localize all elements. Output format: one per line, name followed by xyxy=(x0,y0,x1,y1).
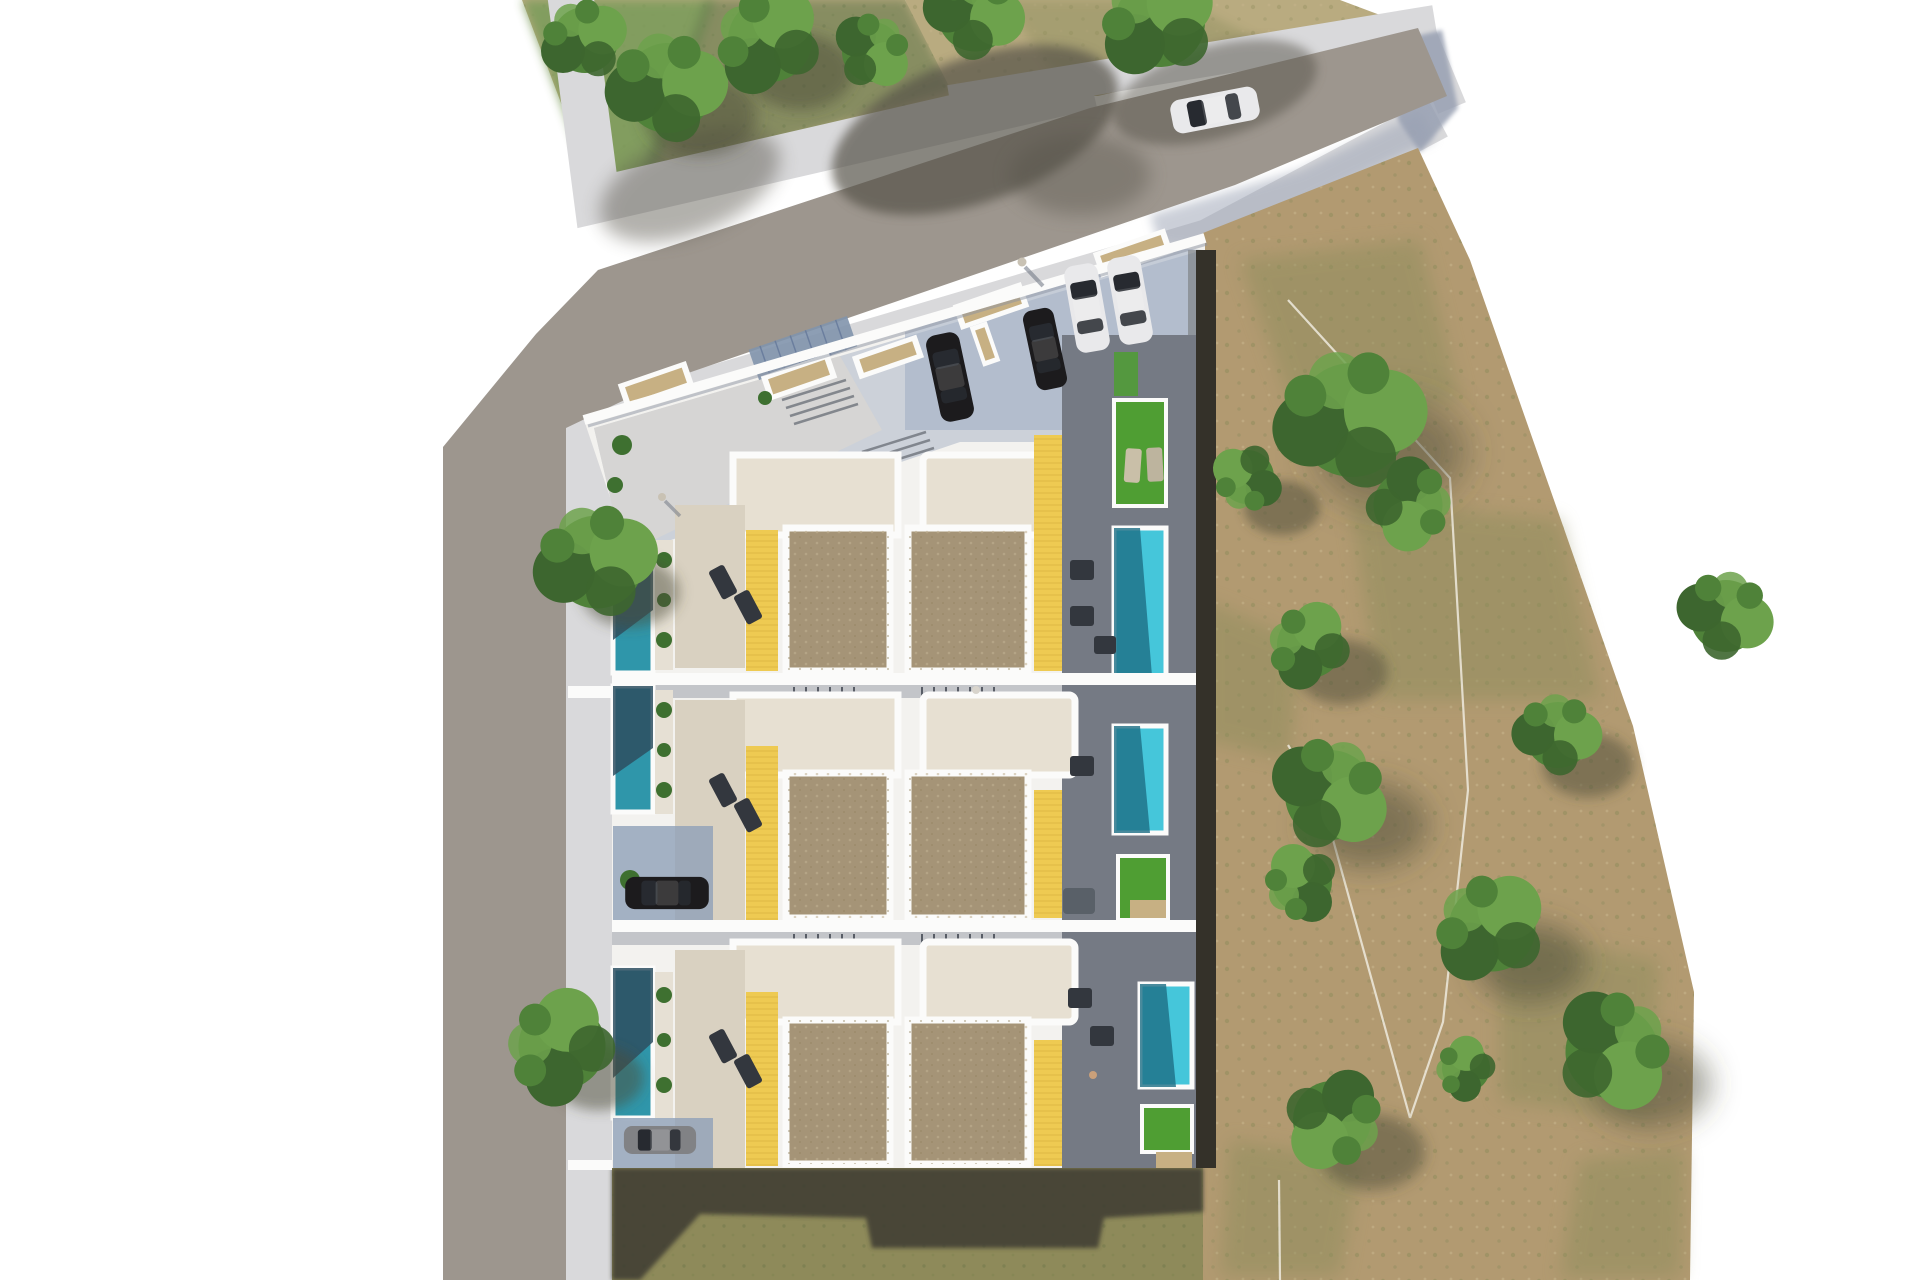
person xyxy=(1018,258,1027,267)
roof-terrace xyxy=(923,695,1075,775)
patio-furniture xyxy=(1070,606,1094,626)
driveway-car-dark xyxy=(625,877,709,909)
pool-east-1 xyxy=(1114,528,1166,676)
outdoor-sofa xyxy=(1063,888,1095,914)
bush xyxy=(612,435,632,455)
driveway-car-gray xyxy=(624,1126,696,1154)
east-hedge-wall xyxy=(1196,250,1216,1168)
bottom-grass xyxy=(612,1168,1203,1280)
person xyxy=(658,493,666,501)
roof-terrace xyxy=(733,455,898,535)
patio-furniture xyxy=(1068,988,1092,1008)
person xyxy=(972,686,980,694)
lawn xyxy=(1142,1106,1192,1152)
patio-furniture xyxy=(1090,1026,1114,1046)
patio-furniture xyxy=(1094,636,1116,654)
wall-stub xyxy=(568,1160,612,1170)
bush xyxy=(607,477,623,493)
party-wall xyxy=(612,920,1196,932)
party-wall xyxy=(612,673,1196,685)
pool-east-3 xyxy=(1140,984,1192,1087)
sun-lounger xyxy=(1146,447,1164,482)
pool-west-2 xyxy=(613,686,653,812)
patio-furniture xyxy=(1070,560,1094,580)
person xyxy=(1089,1071,1097,1079)
pool-east-2 xyxy=(1114,726,1166,833)
villa-building-site xyxy=(568,228,1216,1170)
patio-furniture xyxy=(1070,756,1094,776)
site-plan-canvas xyxy=(0,0,1920,1280)
roof-terrace xyxy=(923,942,1075,1022)
gravel-patch xyxy=(1156,1152,1192,1168)
wall-stub xyxy=(568,686,612,698)
aerial-site-render: Aerial top-down architectural render of … xyxy=(0,0,1920,1280)
sun-lounger xyxy=(1124,448,1142,483)
bush xyxy=(758,391,772,405)
gravel-patch xyxy=(1130,900,1166,918)
lawn xyxy=(1114,352,1138,396)
